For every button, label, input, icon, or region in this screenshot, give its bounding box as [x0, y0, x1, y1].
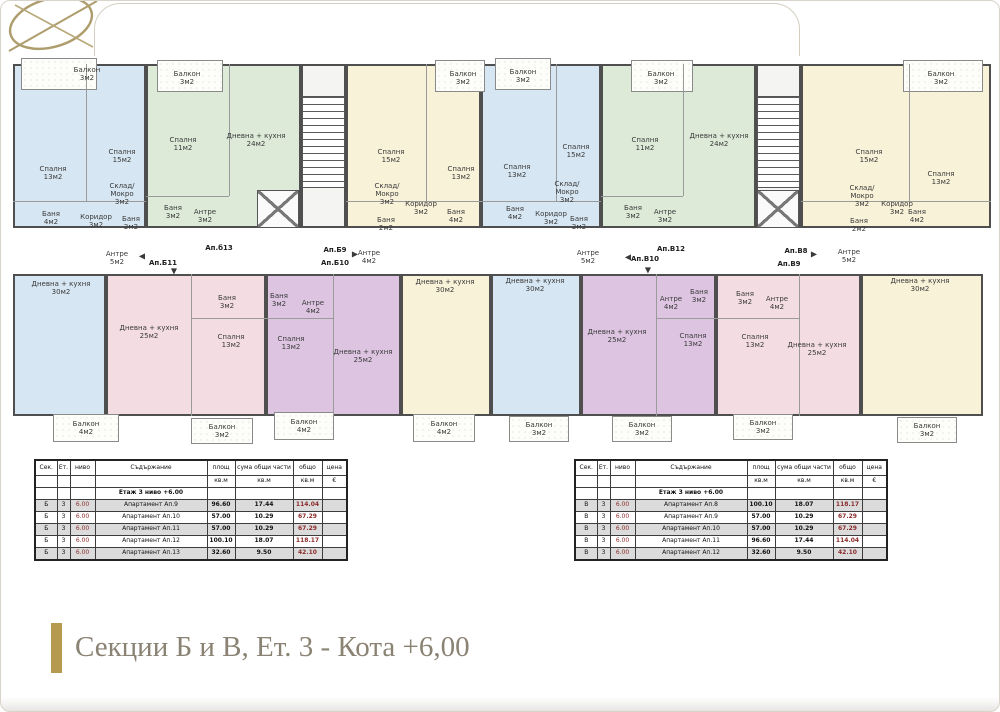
elevator-shaft — [257, 190, 299, 228]
apartments-table-left: Сек.Ет.нивоСъдържаниеплощсума общи части… — [34, 459, 348, 561]
room-label: Баня 2м2 — [377, 216, 395, 232]
room-label: Дневна + кухня 25м2 — [588, 328, 647, 344]
decorative-arc — [94, 3, 800, 56]
table-cell: 67.29 — [833, 524, 862, 536]
partition-wall — [909, 64, 910, 201]
room-label: Балкон 3м2 — [914, 422, 941, 438]
table-cell: 17.44 — [235, 500, 293, 512]
room-label: Балкон 3м2 — [629, 421, 656, 437]
room-label: Балкон 4м2 — [73, 420, 100, 436]
table-cell: 3 — [597, 524, 610, 536]
room-label: Дневна + кухня 30м2 — [506, 277, 565, 293]
apartment-id-label: Ап.б13 — [205, 244, 233, 252]
room-label: Спалня 13м2 — [927, 170, 954, 186]
room-label: Коридор 3м2 — [535, 210, 567, 226]
table-row: Б36.00Апартамент Ап.996.6017.44114.04 — [35, 500, 347, 512]
room-label: Баня 2м2 — [570, 215, 588, 231]
table-cell: 18.07 — [775, 500, 833, 512]
room-label: Балкон 3м2 — [928, 70, 955, 86]
table-cell: 96.60 — [747, 536, 775, 548]
room-label: Спалня 15м2 — [855, 148, 882, 164]
table-cell: кв.м — [775, 476, 833, 488]
table-cell: 10.29 — [775, 524, 833, 536]
apartment-id-label: Ап.Б10 — [321, 259, 349, 267]
table-cell: Сек. — [35, 460, 57, 476]
table-cell: 10.29 — [235, 512, 293, 524]
table-cell: 6.00 — [70, 548, 95, 561]
table-cell: 32.60 — [207, 548, 235, 561]
table-cell: площ — [207, 460, 235, 476]
table-cell — [322, 536, 347, 548]
table-cell: В — [575, 500, 597, 512]
table-cell: 118.17 — [293, 536, 322, 548]
table-cell: Апартамент Ап.11 — [95, 524, 207, 536]
partition-wall — [656, 274, 657, 416]
floor-plan: Балкон 3м2Спалня 13м2Спалня 15м2Склад/ М… — [11, 56, 991, 456]
table-cell: Б — [35, 524, 57, 536]
title-accent-bar — [51, 623, 62, 673]
table-cell: Апартамент Ап.8 — [635, 500, 747, 512]
table-cell: 118.17 — [833, 500, 862, 512]
table-header-row: Сек.Ет.нивоСъдържаниеплощсума общи части… — [575, 460, 887, 476]
table-cell: 6.00 — [70, 512, 95, 524]
room-label: Дневна + кухня 25м2 — [120, 324, 179, 340]
table-cell: 6.00 — [70, 500, 95, 512]
room-label: Балкон 3м2 — [750, 419, 777, 435]
table-cell: В — [575, 536, 597, 548]
table-cell: ниво — [610, 460, 635, 476]
table-cell: 67.29 — [833, 512, 862, 524]
table-row: В36.00Апартамент Ап.957.0010.2967.29 — [575, 512, 887, 524]
room-label: Баня 2м2 — [850, 217, 868, 233]
table-cell: 6.00 — [610, 512, 635, 524]
table-cell — [235, 488, 293, 500]
table-cell: 10.29 — [235, 524, 293, 536]
table-cell — [35, 488, 57, 500]
table-section-row: Етаж 3 ниво +6.00 — [575, 488, 887, 500]
partition-wall — [266, 318, 333, 319]
page-bottom-shadow — [1, 697, 999, 711]
partition-wall — [191, 318, 266, 319]
partition-wall — [86, 64, 87, 201]
table-row: Б36.00Апартамент Ап.1057.0010.2967.29 — [35, 512, 347, 524]
partition-wall — [481, 201, 601, 202]
apartment-id-label: Ап.В10 — [631, 255, 659, 263]
table-cell — [862, 536, 887, 548]
table-row: В36.00Апартамент Ап.8100.1018.07118.17 — [575, 500, 887, 512]
room-label: Баня 3м2 — [624, 204, 642, 220]
table-cell: цена — [862, 460, 887, 476]
table-cell — [610, 476, 635, 488]
partition-wall — [656, 318, 716, 319]
table-cell — [635, 476, 747, 488]
room-label: Балкон 3м2 — [510, 68, 537, 84]
room-label: Баня 2м2 — [122, 215, 140, 231]
table-cell: 3 — [57, 548, 70, 561]
room-label: Дневна + кухня 25м2 — [334, 348, 393, 364]
apartments-table-right: Сек.Ет.нивоСъдържаниеплощсума общи части… — [574, 459, 888, 561]
room-label: Баня 3м2 — [690, 288, 708, 304]
table-cell — [575, 476, 597, 488]
room-label: Баня 4м2 — [447, 208, 465, 224]
table-cell — [293, 488, 322, 500]
entrance-arrow-icon: ◀ — [139, 251, 145, 260]
table-cell: кв.м — [747, 476, 775, 488]
table-cell — [597, 488, 610, 500]
room-label: Антре 3м2 — [654, 208, 676, 224]
table-cell: 57.00 — [747, 512, 775, 524]
table-cell — [862, 548, 887, 561]
table-cell: 114.04 — [833, 536, 862, 548]
room-label: Баня 4м2 — [506, 205, 524, 221]
room-label: Балкон 4м2 — [431, 420, 458, 436]
partition-wall — [146, 196, 229, 197]
table-cell — [70, 476, 95, 488]
entrance-arrow-icon: ◀ — [625, 252, 631, 261]
table-cell — [610, 488, 635, 500]
table-cell — [207, 488, 235, 500]
table-cell: 3 — [597, 512, 610, 524]
page-title: Секции Б и В, Ет. 3 - Кота +6,00 — [75, 631, 715, 664]
slide: Балкон 3м2Спалня 13м2Спалня 15м2Склад/ М… — [0, 0, 1000, 712]
room-label: Антре 4м2 — [766, 295, 788, 311]
apartment-id-label: Ап.В12 — [657, 245, 685, 253]
table-cell: Апартамент Ап.12 — [635, 548, 747, 561]
table-cell: 6.00 — [610, 536, 635, 548]
entrance-arrow-icon: ▶ — [811, 249, 817, 258]
partition-wall — [601, 196, 683, 197]
table-cell — [322, 500, 347, 512]
table-cell — [35, 476, 57, 488]
elevator-shaft — [757, 190, 799, 228]
table-row: В36.00Апартамент Ап.1196.6017.44114.04 — [575, 536, 887, 548]
table-units-row: кв.мкв.мкв.м€ — [35, 476, 347, 488]
table-cell: 6.00 — [70, 536, 95, 548]
table-cell: Съдържание — [635, 460, 747, 476]
table-cell: 114.04 — [293, 500, 322, 512]
room-label: Склад/ Мокро 3м2 — [109, 182, 134, 206]
table-cell: кв.м — [207, 476, 235, 488]
room-label: Антре 5м2 — [106, 250, 128, 266]
table-cell: 6.00 — [610, 548, 635, 561]
staircase — [757, 96, 800, 188]
table-cell: кв.м — [235, 476, 293, 488]
table-cell — [597, 476, 610, 488]
room-label: Спалня 13м2 — [39, 165, 66, 181]
table-cell — [775, 488, 833, 500]
room-label: Дневна + кухня 25м2 — [788, 341, 847, 357]
table-units-row: кв.мкв.мкв.м€ — [575, 476, 887, 488]
apartment-block — [861, 274, 983, 416]
table-cell: 57.00 — [207, 512, 235, 524]
table-cell: 42.10 — [293, 548, 322, 561]
room-label: Антре 4м2 — [302, 299, 324, 315]
table-cell: 6.00 — [610, 524, 635, 536]
apartment-block — [401, 274, 491, 416]
room-label: Антре 5м2 — [577, 249, 599, 265]
table-cell: 3 — [597, 548, 610, 561]
table-cell: 17.44 — [775, 536, 833, 548]
table-cell: Апартамент Ап.10 — [635, 524, 747, 536]
table-cell — [322, 548, 347, 561]
partition-wall — [683, 64, 684, 196]
table-cell — [862, 500, 887, 512]
room-label: Балкон 3м2 — [209, 423, 236, 439]
table-cell: 42.10 — [833, 548, 862, 561]
partition-wall — [426, 64, 427, 201]
table-cell: 3 — [57, 500, 70, 512]
table-cell — [862, 524, 887, 536]
table-cell: Б — [35, 512, 57, 524]
table-cell: 18.07 — [235, 536, 293, 548]
table-section-row: Етаж 3 ниво +6.00 — [35, 488, 347, 500]
room-label: Балкон 3м2 — [648, 70, 675, 86]
room-label: Спалня 11м2 — [169, 136, 196, 152]
room-label: Коридор 3м2 — [80, 213, 112, 229]
table-cell: Б — [35, 536, 57, 548]
table-cell — [575, 488, 597, 500]
table-cell: Апартамент Ап.12 — [95, 536, 207, 548]
table-cell: 32.60 — [747, 548, 775, 561]
table-cell: 57.00 — [207, 524, 235, 536]
table-cell — [833, 488, 862, 500]
table-cell: 3 — [57, 524, 70, 536]
room-label: Балкон 3м2 — [174, 70, 201, 86]
table-cell: 3 — [597, 536, 610, 548]
room-label: Баня 3м2 — [270, 292, 288, 308]
company-logo-icon — [3, 0, 103, 61]
table-cell: Съдържание — [95, 460, 207, 476]
table-cell: 3 — [597, 500, 610, 512]
partition-wall — [229, 64, 230, 196]
room-label: Баня 4м2 — [42, 210, 60, 226]
table-cell: € — [862, 476, 887, 488]
room-label: Дневна + кухня 24м2 — [227, 132, 286, 148]
room-label: Баня 3м2 — [218, 294, 236, 310]
room-label: Баня 4м2 — [908, 208, 926, 224]
room-label: Дневна + кухня 30м2 — [416, 278, 475, 294]
table-cell: В — [575, 512, 597, 524]
table-row: Б36.00Апартамент Ап.1332.609.5042.10 — [35, 548, 347, 561]
table-cell: Етаж 3 ниво +6.00 — [95, 488, 207, 500]
table-header-row: Сек.Ет.нивоСъдържаниеплощсума общи части… — [35, 460, 347, 476]
room-label: Антре 4м2 — [660, 295, 682, 311]
table-cell: сума общи части — [235, 460, 293, 476]
table-row: В36.00Апартамент Ап.1232.609.5042.10 — [575, 548, 887, 561]
room-label: Балкон 3м2 — [74, 66, 101, 82]
table-cell — [747, 488, 775, 500]
table-cell: 100.10 — [747, 500, 775, 512]
apartment-block — [491, 274, 581, 416]
table-cell: 6.00 — [70, 524, 95, 536]
table-cell: 67.29 — [293, 512, 322, 524]
table-cell: Б — [35, 500, 57, 512]
table-row: Б36.00Апартамент Ап.12100.1018.07118.17 — [35, 536, 347, 548]
room-label: Антре 5м2 — [838, 248, 860, 264]
table-cell — [70, 488, 95, 500]
table-cell: 9.50 — [235, 548, 293, 561]
table-cell — [862, 512, 887, 524]
table-cell — [322, 524, 347, 536]
table-cell: Апартамент Ап.13 — [95, 548, 207, 561]
table-cell: В — [575, 548, 597, 561]
entrance-arrow-icon: ▼ — [645, 265, 651, 274]
table-cell — [862, 488, 887, 500]
table-cell: цена — [322, 460, 347, 476]
table-cell: В — [575, 524, 597, 536]
partition-wall — [716, 318, 799, 319]
apartment-id-label: Ап.Б9 — [323, 246, 346, 254]
room-label: Спалня 13м2 — [277, 335, 304, 351]
table-cell: 3 — [57, 512, 70, 524]
room-label: Спалня 13м2 — [679, 332, 706, 348]
table-cell — [322, 488, 347, 500]
table-cell: кв.м — [833, 476, 862, 488]
table-cell: Етаж 3 ниво +6.00 — [635, 488, 747, 500]
table-cell: 3 — [57, 536, 70, 548]
table-cell: 6.00 — [610, 500, 635, 512]
table-cell: 100.10 — [207, 536, 235, 548]
room-label: Спалня 13м2 — [447, 165, 474, 181]
room-label: Спалня 15м2 — [108, 148, 135, 164]
room-label: Спалня 13м2 — [503, 163, 530, 179]
room-label: Балкон 4м2 — [291, 418, 318, 434]
table-cell: Б — [35, 548, 57, 561]
staircase — [302, 96, 345, 188]
room-label: Спалня 11м2 — [631, 136, 658, 152]
room-label: Склад/ Мокро 3м2 — [554, 180, 579, 204]
room-label: Коридор 3м2 — [405, 200, 437, 216]
apartment-id-label: Ап.В8 — [784, 247, 807, 255]
table-row: В36.00Апартамент Ап.1057.0010.2967.29 — [575, 524, 887, 536]
room-label: Спалня 15м2 — [377, 148, 404, 164]
table-cell: 9.50 — [775, 548, 833, 561]
table-cell: Апартамент Ап.11 — [635, 536, 747, 548]
room-label: Дневна + кухня 30м2 — [891, 277, 950, 293]
table-cell — [322, 512, 347, 524]
room-label: Антре 3м2 — [194, 208, 216, 224]
table-row: Б36.00Апартамент Ап.1157.0010.2967.29 — [35, 524, 347, 536]
room-label: Дневна + кухня 24м2 — [690, 132, 749, 148]
table-cell: Апартамент Ап.9 — [95, 500, 207, 512]
table-cell: сума общи части — [775, 460, 833, 476]
room-label: Баня 3м2 — [164, 204, 182, 220]
room-label: Баня 3м2 — [736, 290, 754, 306]
room-label: Склад/ Мокро 3м2 — [849, 184, 874, 208]
table-cell — [95, 476, 207, 488]
table-cell: Сек. — [575, 460, 597, 476]
table-cell: 57.00 — [747, 524, 775, 536]
table-cell: ниво — [70, 460, 95, 476]
room-label: Спалня 15м2 — [562, 143, 589, 159]
table-cell: Ет. — [57, 460, 70, 476]
table-cell: € — [322, 476, 347, 488]
room-label: Склад/ Мокро 3м2 — [374, 182, 399, 206]
apartment-id-label: Ап.В9 — [777, 260, 800, 268]
table-cell: Ет. — [597, 460, 610, 476]
table-cell: общо — [293, 460, 322, 476]
partition-wall — [191, 274, 192, 416]
table-cell — [57, 476, 70, 488]
room-label: Балкон 3м2 — [450, 70, 477, 86]
table-cell: 10.29 — [775, 512, 833, 524]
table-cell: кв.м — [293, 476, 322, 488]
room-label: Спалня 13м2 — [741, 333, 768, 349]
table-cell: 67.29 — [293, 524, 322, 536]
table-cell: 96.60 — [207, 500, 235, 512]
table-cell: площ — [747, 460, 775, 476]
partition-wall — [333, 274, 334, 416]
table-cell: общо — [833, 460, 862, 476]
entrance-arrow-icon: ▶ — [352, 249, 358, 258]
table-cell: Апартамент Ап.9 — [635, 512, 747, 524]
room-label: Спалня 13м2 — [217, 333, 244, 349]
table-cell — [57, 488, 70, 500]
room-label: Балкон 3м2 — [526, 421, 553, 437]
room-label: Антре 4м2 — [358, 249, 380, 265]
room-label: Дневна + кухня 30м2 — [32, 280, 91, 296]
entrance-arrow-icon: ▼ — [171, 266, 177, 275]
table-cell: Апартамент Ап.10 — [95, 512, 207, 524]
